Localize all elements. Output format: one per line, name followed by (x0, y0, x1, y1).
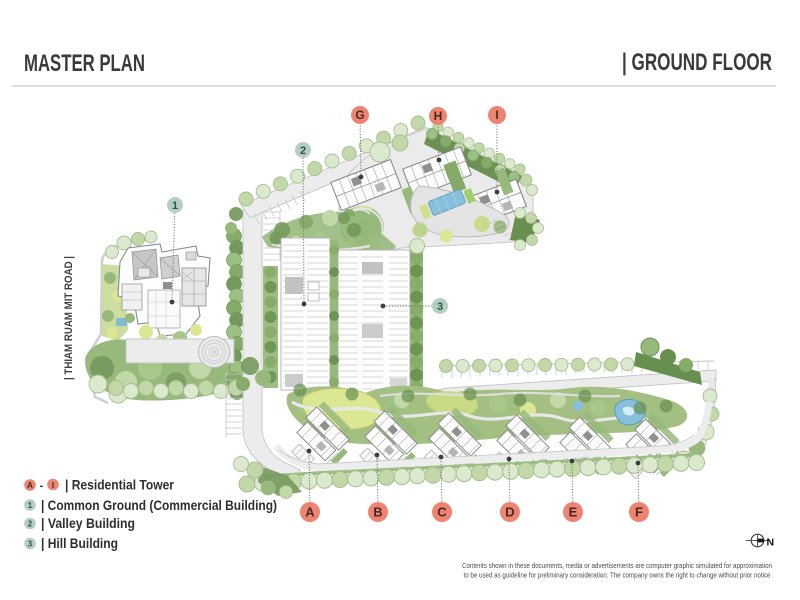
svg-text:I: I (495, 108, 498, 122)
svg-text:to be used as guideline for pr: to be used as guideline for preliminary … (464, 571, 771, 580)
svg-text:MASTER PLAN: MASTER PLAN (24, 50, 145, 77)
svg-text:E: E (569, 505, 578, 520)
svg-text:3: 3 (28, 540, 33, 549)
svg-text:C: C (437, 505, 447, 520)
svg-text:| Hill Building: | Hill Building (41, 535, 118, 551)
svg-text:1: 1 (172, 200, 178, 212)
svg-text:-: - (40, 480, 44, 492)
svg-text:G: G (355, 108, 364, 122)
svg-text:| GROUND FLOOR: | GROUND FLOOR (622, 49, 772, 76)
svg-text:| Valley Building: | Valley Building (41, 515, 135, 531)
svg-text:I: I (52, 481, 54, 490)
svg-text:| THIAM RUAM MIT ROAD |: | THIAM RUAM MIT ROAD | (63, 256, 75, 380)
svg-text:1: 1 (28, 501, 33, 510)
svg-text:3: 3 (437, 301, 443, 313)
svg-text:B: B (373, 505, 382, 520)
svg-text:| Common Ground (Commercial Bu: | Common Ground (Commercial Building) (41, 497, 277, 513)
svg-text:F: F (635, 505, 643, 520)
svg-text:N: N (767, 537, 775, 549)
svg-text:2: 2 (28, 520, 33, 529)
svg-text:H: H (434, 109, 443, 123)
svg-text:2: 2 (300, 145, 306, 157)
svg-text:| Residential Tower: | Residential Tower (65, 477, 174, 493)
svg-text:D: D (505, 505, 514, 520)
svg-text:A: A (27, 481, 33, 490)
svg-text:Contents shown in these docum: Contents shown in these documents, media… (462, 561, 772, 570)
svg-text:A: A (305, 505, 315, 520)
